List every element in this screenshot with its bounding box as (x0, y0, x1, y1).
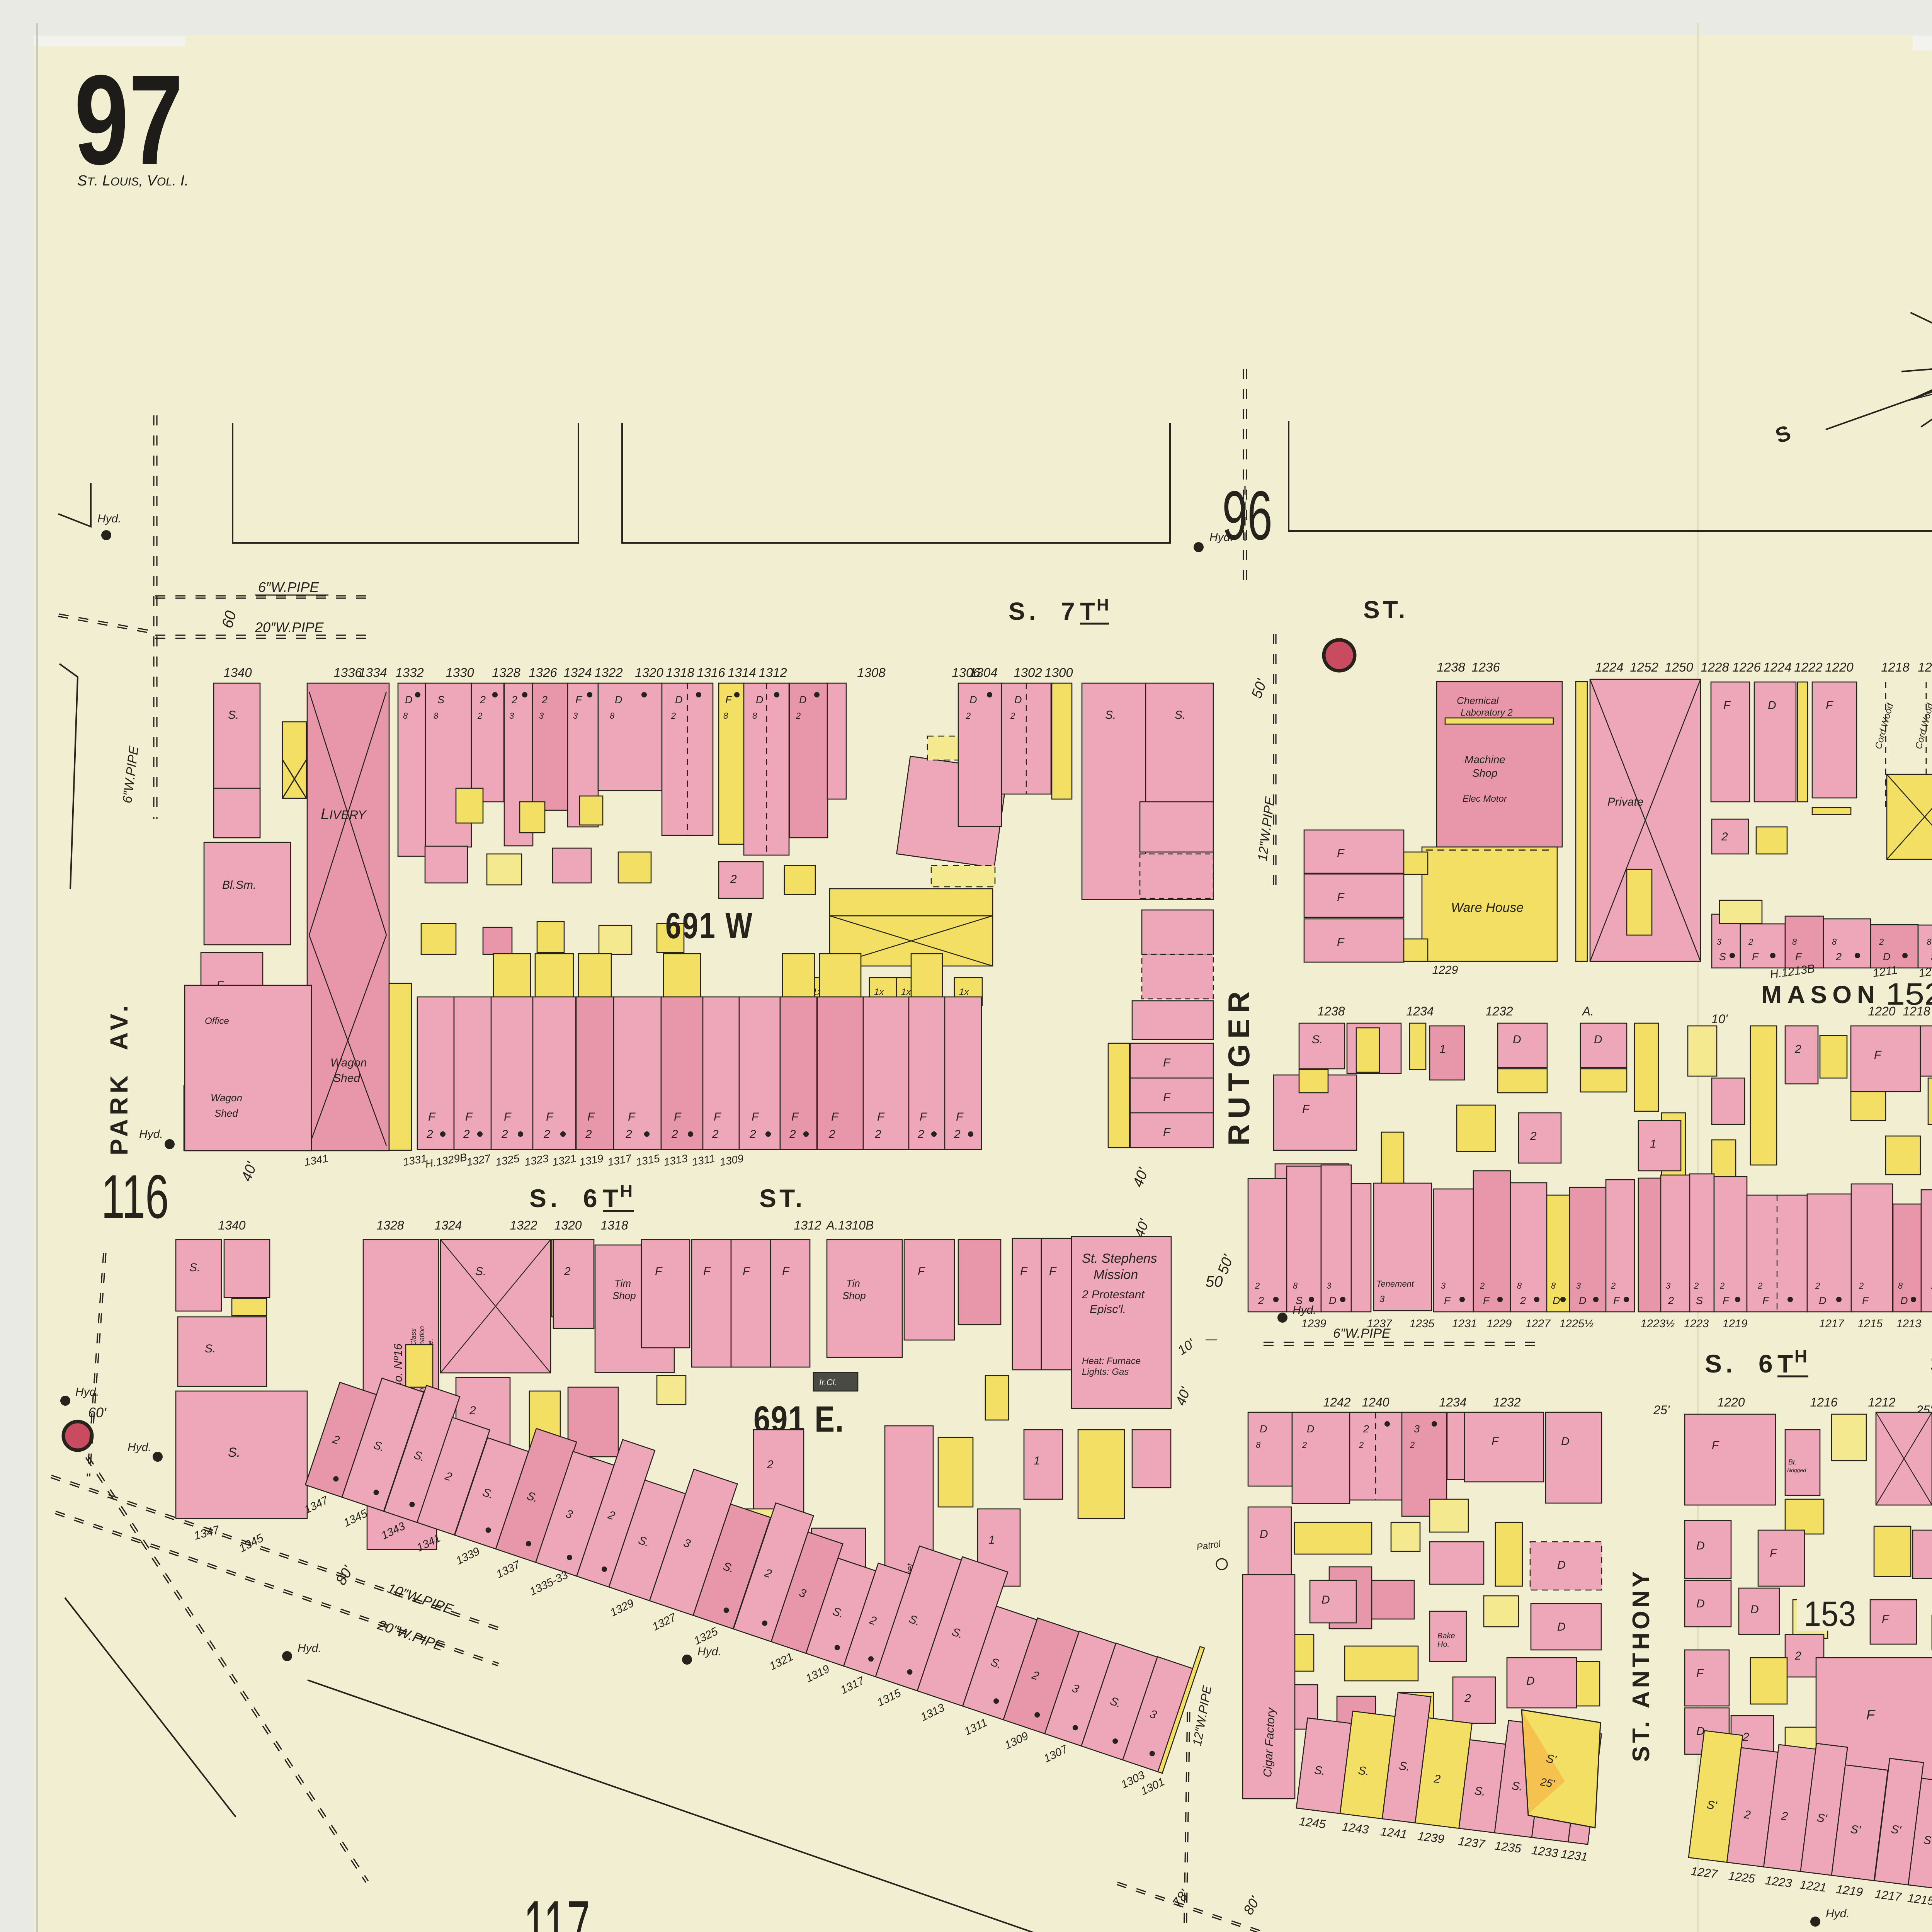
svg-text:2: 2 (1748, 937, 1753, 947)
svg-text:D: D (1696, 1539, 1705, 1552)
svg-text:2: 2 (828, 1128, 835, 1141)
svg-text:D: D (1561, 1435, 1570, 1448)
svg-text:F: F (1613, 1295, 1620, 1306)
svg-text:8: 8 (752, 711, 757, 721)
svg-text:D: D (1557, 1621, 1566, 1633)
svg-text:F: F (877, 1111, 885, 1123)
svg-text:2: 2 (1255, 1281, 1260, 1291)
svg-text:Shed: Shed (214, 1107, 238, 1119)
svg-text:2: 2 (564, 1265, 571, 1278)
svg-text:ST.: ST. (1930, 1349, 1932, 1378)
svg-text:F: F (1752, 951, 1759, 963)
svg-text:F: F (918, 1265, 925, 1278)
svg-text:2: 2 (1530, 1130, 1537, 1143)
svg-text:117: 117 (524, 1885, 590, 1932)
svg-text:Ir.Cl.: Ir.Cl. (819, 1378, 837, 1387)
svg-text:1340: 1340 (223, 665, 252, 680)
svg-text:1334: 1334 (359, 665, 387, 680)
svg-text:1227: 1227 (1526, 1318, 1551, 1330)
svg-text:1250: 1250 (1665, 660, 1693, 674)
svg-text:F: F (956, 1111, 964, 1123)
svg-text:ST.: ST. (759, 1184, 805, 1213)
svg-text:S.: S. (205, 1342, 216, 1355)
svg-text:D: D (969, 694, 977, 706)
svg-text:F: F (1163, 1091, 1171, 1104)
svg-text:LIVERY: LIVERY (321, 806, 367, 823)
svg-text:Bake: Bake (1437, 1632, 1455, 1640)
svg-text:1216: 1216 (1810, 1395, 1837, 1409)
svg-text:D: D (1750, 1603, 1759, 1616)
svg-text:1224: 1224 (1763, 660, 1791, 674)
svg-text:8: 8 (1832, 937, 1837, 947)
svg-text:1322: 1322 (510, 1218, 537, 1232)
svg-text:T: T (603, 1184, 618, 1213)
svg-text:F: F (1712, 1439, 1719, 1452)
svg-text:S.: S. (1511, 1779, 1523, 1793)
svg-text:1231: 1231 (1452, 1318, 1477, 1330)
svg-text:2: 2 (1721, 830, 1728, 843)
svg-text:Hyd.: Hyd. (139, 1128, 163, 1141)
svg-text:1226: 1226 (1732, 660, 1761, 674)
svg-text:F: F (1483, 1295, 1490, 1306)
svg-text:8: 8 (1256, 1440, 1261, 1450)
svg-text:1238: 1238 (1317, 1004, 1345, 1018)
svg-text:F: F (1020, 1265, 1028, 1278)
svg-text:1: 1 (988, 1534, 995, 1546)
svg-text:S.: S. (228, 1445, 240, 1460)
svg-text:3: 3 (1666, 1281, 1671, 1291)
svg-text:3: 3 (1717, 937, 1722, 947)
svg-text:2: 2 (501, 1128, 508, 1141)
svg-text:F: F (575, 694, 582, 706)
svg-text:ST.: ST. (1363, 596, 1408, 624)
svg-text:2: 2 (1480, 1281, 1485, 1291)
svg-text:2: 2 (1694, 1281, 1699, 1291)
svg-text:1340: 1340 (218, 1218, 245, 1232)
svg-text:1: 1 (1650, 1138, 1656, 1150)
svg-text:2: 2 (1668, 1295, 1674, 1306)
svg-text:6″W.PIPE: 6″W.PIPE (258, 579, 319, 595)
svg-text:8: 8 (1927, 937, 1932, 947)
svg-text:F: F (504, 1111, 512, 1123)
svg-text:F: F (920, 1111, 927, 1123)
svg-text:1252: 1252 (1630, 660, 1658, 674)
svg-text:Bl.Sm.: Bl.Sm. (222, 879, 256, 891)
svg-text:St. Stephens: St. Stephens (1082, 1251, 1157, 1266)
svg-text:1216: 1216 (1918, 660, 1932, 674)
svg-text:D: D (1553, 1295, 1560, 1306)
svg-text:2: 2 (712, 1128, 719, 1141)
svg-text:A.1310B: A.1310B (826, 1218, 874, 1232)
svg-text:1: 1 (1034, 1454, 1040, 1467)
svg-text:1224: 1224 (1595, 660, 1623, 674)
svg-text:Heat: Furnace: Heat: Furnace (1082, 1356, 1141, 1366)
svg-text:2: 2 (1835, 951, 1842, 963)
svg-text:2: 2 (730, 873, 737, 886)
svg-text:1318: 1318 (666, 665, 694, 680)
svg-text:F: F (1337, 847, 1345, 860)
svg-text:1213: 1213 (1896, 1318, 1922, 1330)
svg-text:2: 2 (796, 711, 801, 721)
svg-text:3: 3 (1379, 1294, 1385, 1304)
svg-text:2: 2 (511, 694, 517, 706)
svg-text:S.: S. (1105, 709, 1116, 721)
svg-text:Hyd.: Hyd. (1293, 1304, 1316, 1316)
svg-text:D: D (1307, 1423, 1315, 1435)
svg-text:Nogged: Nogged (1787, 1467, 1806, 1473)
svg-text:8: 8 (1551, 1281, 1556, 1291)
svg-text:1217: 1217 (1819, 1318, 1845, 1330)
svg-text:1215: 1215 (1858, 1318, 1883, 1330)
svg-text:A.: A. (1582, 1004, 1594, 1018)
svg-text:Lights: Gas: Lights: Gas (1082, 1367, 1129, 1377)
svg-text:S: S (1696, 1295, 1703, 1306)
svg-text:D: D (1260, 1423, 1267, 1435)
svg-text:S.: S. (1312, 1033, 1323, 1046)
svg-text:1220: 1220 (1717, 1395, 1745, 1409)
svg-text:D: D (405, 694, 413, 706)
svg-text:1300: 1300 (1044, 665, 1073, 680)
svg-text:S: S (437, 694, 444, 706)
svg-text:1314: 1314 (728, 665, 756, 680)
svg-text:Ho.: Ho. (1437, 1640, 1449, 1649)
svg-text:ST. LOUIS, VOL. I.: ST. LOUIS, VOL. I. (77, 173, 189, 189)
svg-text:1235: 1235 (1410, 1318, 1435, 1330)
svg-text:F: F (674, 1111, 682, 1123)
svg-text:Wagon: Wagon (211, 1092, 242, 1104)
svg-text:1316: 1316 (697, 665, 725, 680)
svg-text:2: 2 (480, 694, 486, 706)
svg-text:D: D (1513, 1033, 1521, 1046)
svg-text:PARK AV.: PARK AV. (105, 1002, 133, 1155)
svg-text:1240: 1240 (1362, 1395, 1389, 1409)
svg-text:F: F (628, 1111, 636, 1123)
svg-text:1322: 1322 (594, 665, 622, 680)
svg-text:1229: 1229 (1487, 1318, 1512, 1330)
svg-text:2: 2 (749, 1128, 756, 1141)
svg-text:F: F (752, 1111, 759, 1123)
svg-text:D: D (1260, 1528, 1268, 1541)
svg-text:D: D (799, 694, 807, 706)
svg-text:2: 2 (1611, 1281, 1616, 1291)
svg-text:2: 2 (477, 711, 482, 721)
svg-text:2: 2 (1794, 1650, 1801, 1662)
svg-text:D: D (1696, 1597, 1705, 1610)
svg-text:1x: 1x (874, 987, 884, 997)
svg-text:D: D (1883, 951, 1891, 963)
svg-text:2: 2 (1815, 1281, 1820, 1291)
svg-text:1222: 1222 (1794, 660, 1822, 674)
svg-text:S.: S. (189, 1261, 200, 1274)
svg-text:Hyd.: Hyd. (697, 1645, 721, 1658)
svg-text:2: 2 (789, 1128, 796, 1141)
svg-text:1236: 1236 (1471, 660, 1500, 674)
svg-text:F: F (1762, 1295, 1769, 1306)
svg-text:F: F (1337, 891, 1345, 904)
svg-text:2: 2 (469, 1404, 476, 1417)
svg-text:2: 2 (1464, 1692, 1471, 1705)
svg-text:116: 116 (101, 1162, 169, 1231)
svg-text:20″W.PIPE: 20″W.PIPE (255, 619, 324, 635)
svg-text:1232: 1232 (1493, 1395, 1520, 1409)
svg-text:2 Protestant: 2 Protestant (1082, 1288, 1145, 1301)
svg-text:8: 8 (1792, 937, 1797, 947)
svg-text:1320: 1320 (554, 1218, 582, 1232)
svg-text:1220: 1220 (1868, 1004, 1895, 1018)
svg-text:Chemical: Chemical (1457, 695, 1499, 706)
svg-text:F: F (1723, 1295, 1730, 1306)
svg-text:F: F (1337, 936, 1345, 949)
svg-text:S: S (1719, 951, 1726, 963)
svg-text:D: D (1321, 1594, 1330, 1606)
svg-text:2: 2 (1520, 1295, 1526, 1306)
svg-text:2: 2 (543, 1128, 550, 1141)
svg-text:Hyd.: Hyd. (128, 1441, 151, 1454)
svg-text:S.: S. (1474, 1784, 1486, 1798)
svg-text:F: F (714, 1111, 721, 1123)
svg-text:Wagon: Wagon (330, 1056, 367, 1069)
svg-text:F: F (791, 1111, 799, 1123)
svg-text:2: 2 (1258, 1295, 1264, 1306)
svg-text:1x: 1x (959, 987, 969, 997)
svg-text:1225½: 1225½ (1560, 1318, 1594, 1330)
svg-text:D: D (1900, 1295, 1908, 1306)
svg-text:F: F (1862, 1295, 1869, 1306)
svg-text:Hyd.: Hyd. (1826, 1907, 1850, 1920)
svg-text:153: 153 (1804, 1594, 1856, 1634)
svg-text:2: 2 (1879, 937, 1884, 947)
svg-text:2: 2 (1742, 1731, 1749, 1743)
svg-text:Office: Office (205, 1016, 229, 1026)
svg-text:F: F (1302, 1103, 1310, 1116)
svg-text:97: 97 (74, 48, 183, 191)
svg-text:1223½: 1223½ (1641, 1318, 1675, 1330)
svg-text:D: D (1526, 1675, 1535, 1687)
svg-text:F: F (1163, 1056, 1171, 1069)
svg-text:3: 3 (509, 711, 514, 721)
svg-text:RUTGER: RUTGER (1222, 986, 1256, 1146)
svg-text:F: F (1795, 951, 1802, 963)
svg-text:F: F (1826, 699, 1833, 712)
svg-text:1308: 1308 (857, 665, 886, 680)
svg-text:2: 2 (954, 1128, 961, 1141)
svg-text:6″W.PIPE: 6″W.PIPE (1333, 1326, 1391, 1341)
svg-text:D: D (1329, 1295, 1337, 1306)
svg-text:F: F (1866, 1707, 1876, 1723)
svg-text:1: 1 (1439, 1043, 1446, 1056)
svg-text:Episc'l.: Episc'l. (1090, 1303, 1126, 1316)
svg-text:1312: 1312 (759, 665, 787, 680)
svg-text:Tenement: Tenement (1376, 1279, 1414, 1289)
svg-text:F: F (1882, 1613, 1889, 1626)
svg-text:F: F (465, 1111, 473, 1123)
svg-text:D: D (1014, 694, 1022, 706)
svg-text:2: 2 (625, 1128, 632, 1141)
svg-text:F: F (1723, 699, 1731, 712)
svg-text:F: F (1163, 1126, 1171, 1139)
svg-text:1326: 1326 (529, 665, 557, 680)
svg-text:1x: 1x (901, 987, 911, 997)
svg-text:2: 2 (1719, 1281, 1725, 1291)
svg-text:2: 2 (966, 711, 971, 721)
svg-text:3: 3 (1327, 1281, 1332, 1291)
svg-text:F: F (1696, 1667, 1704, 1680)
svg-text:1218: 1218 (1903, 1004, 1930, 1018)
svg-text:3: 3 (1441, 1281, 1446, 1291)
svg-text:1223: 1223 (1684, 1318, 1709, 1330)
svg-text:—: — (1205, 1333, 1218, 1345)
svg-text:1239: 1239 (1301, 1318, 1327, 1330)
svg-text:F: F (546, 1111, 554, 1123)
svg-text:25': 25' (1653, 1403, 1670, 1417)
svg-text:1302: 1302 (1014, 665, 1042, 680)
svg-text:S': S' (1923, 1833, 1932, 1847)
svg-text:1324: 1324 (434, 1218, 462, 1232)
svg-text:F: F (725, 694, 732, 706)
svg-text:8: 8 (1517, 1281, 1522, 1291)
svg-text:Hyd.: Hyd. (298, 1642, 321, 1655)
svg-text:Ware House: Ware House (1451, 900, 1524, 915)
svg-text:S: S (1930, 951, 1932, 963)
svg-text:10': 10' (1711, 1012, 1728, 1026)
svg-text:S.: S. (228, 709, 239, 721)
svg-text:F: F (1492, 1435, 1499, 1448)
svg-text:Shed: Shed (333, 1072, 361, 1085)
svg-text:Tim: Tim (614, 1277, 631, 1289)
svg-text:1228: 1228 (1701, 660, 1729, 674)
svg-text:MASON: MASON (1761, 981, 1880, 1009)
svg-text:2: 2 (1794, 1043, 1801, 1056)
svg-text:2: 2 (1359, 1440, 1364, 1450)
svg-text:Mission: Mission (1094, 1267, 1138, 1282)
svg-text:2: 2 (767, 1458, 774, 1471)
svg-text:F: F (655, 1265, 663, 1278)
svg-text:1304: 1304 (969, 665, 997, 680)
svg-text:1332: 1332 (395, 665, 423, 680)
svg-text:Shop: Shop (842, 1290, 866, 1301)
svg-text:2: 2 (671, 711, 676, 721)
svg-text:D: D (615, 694, 622, 706)
svg-text:S.: S. (1357, 1764, 1370, 1778)
svg-text:8: 8 (1293, 1281, 1298, 1291)
svg-text:2: 2 (671, 1128, 678, 1141)
svg-text:S. 6: S. 6 (1705, 1349, 1777, 1378)
svg-text:1238: 1238 (1437, 660, 1465, 674)
svg-text:T: T (1080, 597, 1095, 625)
svg-text:50: 50 (1206, 1273, 1223, 1290)
svg-text:2: 2 (1010, 711, 1015, 721)
svg-text:8: 8 (403, 711, 408, 721)
svg-text:D: D (1594, 1033, 1602, 1046)
svg-text:1328: 1328 (492, 665, 520, 680)
svg-text:3: 3 (539, 711, 544, 721)
svg-text:Machine: Machine (1464, 753, 1505, 765)
svg-text:1229: 1229 (1432, 964, 1458, 976)
svg-text:D: D (1579, 1295, 1587, 1306)
svg-text:3: 3 (573, 711, 578, 721)
svg-text:2: 2 (1757, 1281, 1762, 1291)
svg-text:1232: 1232 (1485, 1004, 1513, 1018)
svg-text:Private: Private (1607, 796, 1643, 808)
svg-text:Shop: Shop (612, 1290, 636, 1301)
svg-text:1324: 1324 (563, 665, 592, 680)
svg-text:D: D (756, 694, 764, 706)
svg-text:1234: 1234 (1406, 1004, 1434, 1018)
svg-text:S.: S. (475, 1265, 486, 1278)
svg-text:8: 8 (610, 711, 615, 721)
svg-text:S. 6: S. 6 (529, 1184, 601, 1213)
svg-text:1212: 1212 (1868, 1395, 1895, 1409)
svg-text:1318: 1318 (600, 1218, 628, 1232)
svg-text:96: 96 (1222, 477, 1272, 554)
svg-text:1312: 1312 (794, 1218, 821, 1232)
svg-text:1220: 1220 (1825, 660, 1854, 674)
svg-text:ST. ANTHONY: ST. ANTHONY (1628, 1568, 1655, 1762)
svg-text:1218: 1218 (1881, 660, 1910, 674)
svg-text:1234: 1234 (1439, 1395, 1466, 1409)
svg-text:F: F (1770, 1547, 1777, 1560)
svg-text:F: F (782, 1265, 790, 1278)
svg-text:691 W: 691 W (665, 905, 753, 946)
svg-text:S. 7: S. 7 (1009, 597, 1079, 625)
svg-text:Shop: Shop (1472, 767, 1497, 779)
svg-text:2: 2 (541, 694, 548, 706)
svg-text:F: F (1874, 1049, 1882, 1061)
svg-text:H: H (1794, 1346, 1807, 1366)
svg-text:D: D (1557, 1559, 1566, 1571)
svg-text:F: F (703, 1265, 711, 1278)
svg-text:2: 2 (585, 1128, 592, 1141)
svg-text:1330: 1330 (446, 665, 474, 680)
svg-text:1320: 1320 (635, 665, 663, 680)
svg-text:S.: S. (1175, 709, 1185, 721)
svg-text:D: D (1768, 699, 1776, 712)
svg-text:Laboratory 2: Laboratory 2 (1461, 707, 1513, 718)
svg-text:F: F (1049, 1265, 1057, 1278)
svg-text:2: 2 (463, 1128, 470, 1141)
svg-text:F: F (831, 1111, 839, 1123)
svg-text:1328: 1328 (376, 1218, 404, 1232)
svg-text:2: 2 (874, 1128, 881, 1141)
svg-text:1219: 1219 (1723, 1318, 1748, 1330)
svg-text:F: F (743, 1265, 750, 1278)
svg-text:S.: S. (1398, 1759, 1410, 1773)
svg-text:F: F (587, 1111, 595, 1123)
svg-text:T: T (1777, 1349, 1793, 1378)
svg-text:1336: 1336 (333, 665, 362, 680)
svg-text:D: D (675, 694, 683, 706)
svg-text:F: F (428, 1111, 436, 1123)
svg-text:H: H (1097, 595, 1109, 614)
svg-text:S.: S. (1313, 1764, 1326, 1777)
svg-text:H: H (620, 1181, 633, 1201)
svg-text:Br.: Br. (1788, 1458, 1797, 1466)
svg-text:2: 2 (1363, 1423, 1369, 1435)
svg-text:60': 60' (88, 1405, 107, 1420)
svg-text:D: D (1819, 1295, 1827, 1306)
svg-text:2: 2 (1302, 1440, 1307, 1450)
svg-text:8: 8 (434, 711, 439, 721)
svg-text:3: 3 (1414, 1423, 1420, 1435)
svg-text:2: 2 (1859, 1281, 1864, 1291)
svg-text:F: F (1444, 1295, 1451, 1306)
svg-text:Tin: Tin (846, 1277, 860, 1289)
svg-text:8: 8 (1898, 1281, 1903, 1291)
svg-text:1242: 1242 (1323, 1395, 1350, 1409)
svg-text:8: 8 (723, 711, 728, 721)
svg-text:3: 3 (1576, 1281, 1581, 1291)
svg-text:2: 2 (917, 1128, 924, 1141)
